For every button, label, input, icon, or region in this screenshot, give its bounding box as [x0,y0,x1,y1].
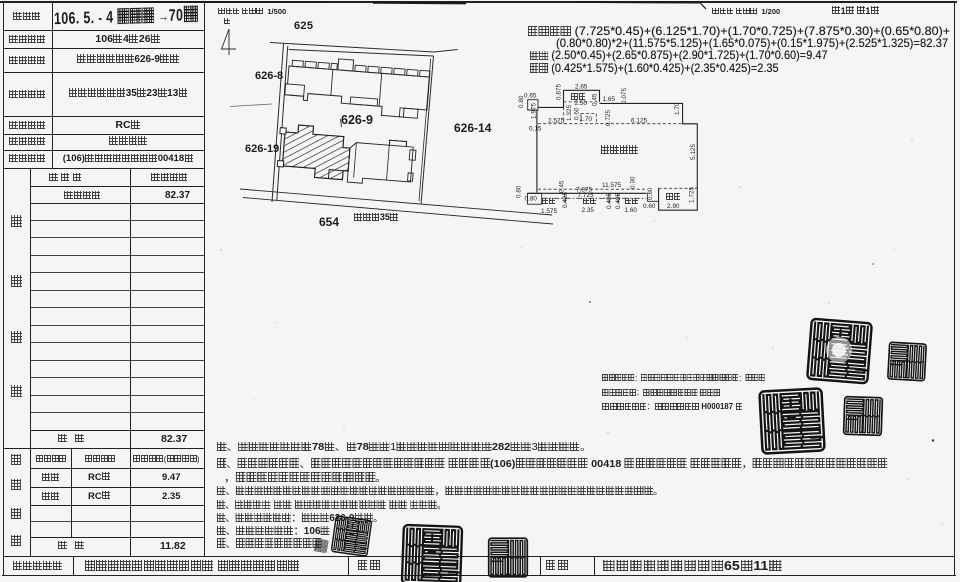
svg-text:2.35: 2.35 [582,207,595,214]
svg-text:0.80: 0.80 [525,196,538,203]
svg-text:6.125: 6.125 [631,118,647,125]
svg-text:2.525: 2.525 [548,118,564,125]
svg-text:0.80: 0.80 [518,95,525,108]
svg-text:1.975: 1.975 [531,103,538,119]
svg-text:1.70: 1.70 [580,116,593,123]
svg-text:0.875: 0.875 [556,84,563,100]
svg-text:0.60: 0.60 [574,107,581,120]
svg-text:2.90: 2.90 [667,203,680,210]
svg-text:2.50: 2.50 [575,100,588,107]
svg-text:1.725: 1.725 [689,187,696,203]
svg-text:0.60: 0.60 [643,203,656,210]
svg-text:2.65: 2.65 [575,84,588,91]
svg-text:0.425: 0.425 [606,193,613,209]
svg-text:1.65: 1.65 [603,96,616,103]
svg-text:0.075: 0.075 [621,88,628,104]
svg-text:0.80: 0.80 [516,185,523,198]
svg-text:0.45: 0.45 [592,93,599,106]
svg-text:1.325: 1.325 [566,105,573,121]
svg-text:1.70: 1.70 [674,102,681,115]
svg-text:5.125: 5.125 [690,144,697,160]
svg-text:0.725: 0.725 [605,110,612,126]
svg-text:0.30: 0.30 [630,176,637,189]
svg-text:1.575: 1.575 [541,208,557,215]
svg-text:0.65: 0.65 [524,93,537,100]
svg-text:11.575: 11.575 [602,182,622,189]
svg-text:0.45: 0.45 [559,180,566,193]
svg-text:0.80: 0.80 [647,187,654,200]
svg-text:0.15: 0.15 [529,126,542,133]
svg-text:0.425: 0.425 [562,192,569,208]
svg-text:1.60: 1.60 [625,207,638,214]
svg-text:0.425: 0.425 [615,193,622,209]
